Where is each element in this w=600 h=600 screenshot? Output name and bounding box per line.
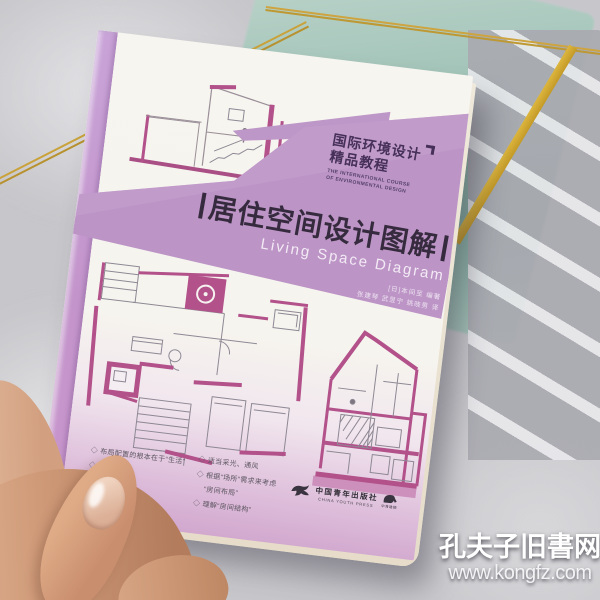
cover-section-sketch [305,316,440,505]
highlight-list-left: ◇ 布局配置的根本在于“生活” ◇ 转角窗 ◇ 隐藏式玄关 ◇ 传递光线的构造 [84,444,185,513]
book: 国际环境设计 精品教程 THE INTERNATIONAL COURSE OF … [39,30,474,560]
photo-of-book: 国际环境设计 精品教程 THE INTERNATIONAL COURSE OF … [0,0,600,600]
watermark: 孔夫子旧書网 www.kongfz.com [436,532,600,585]
corner-bracket-icon [425,145,435,155]
dragon-logo-icon [288,481,312,501]
watermark-site-name: 孔夫子旧書网 [436,532,600,562]
watermark-site-url: www.kongfz.com [436,562,600,585]
title-bar-right [440,235,448,261]
highlight-list-right: ◇ 适当采光、通风 ◇ 根据“场所”需求来考虑 “房间布局” ◇ 理解“房间结构… [192,453,279,520]
title-bar-left [198,192,206,218]
imprint-block: 中青雄狮 [381,492,399,511]
marble-tile-pattern [468,30,600,460]
book-front-cover: 国际环境设计 精品教程 THE INTERNATIONAL COURSE OF … [39,30,474,560]
